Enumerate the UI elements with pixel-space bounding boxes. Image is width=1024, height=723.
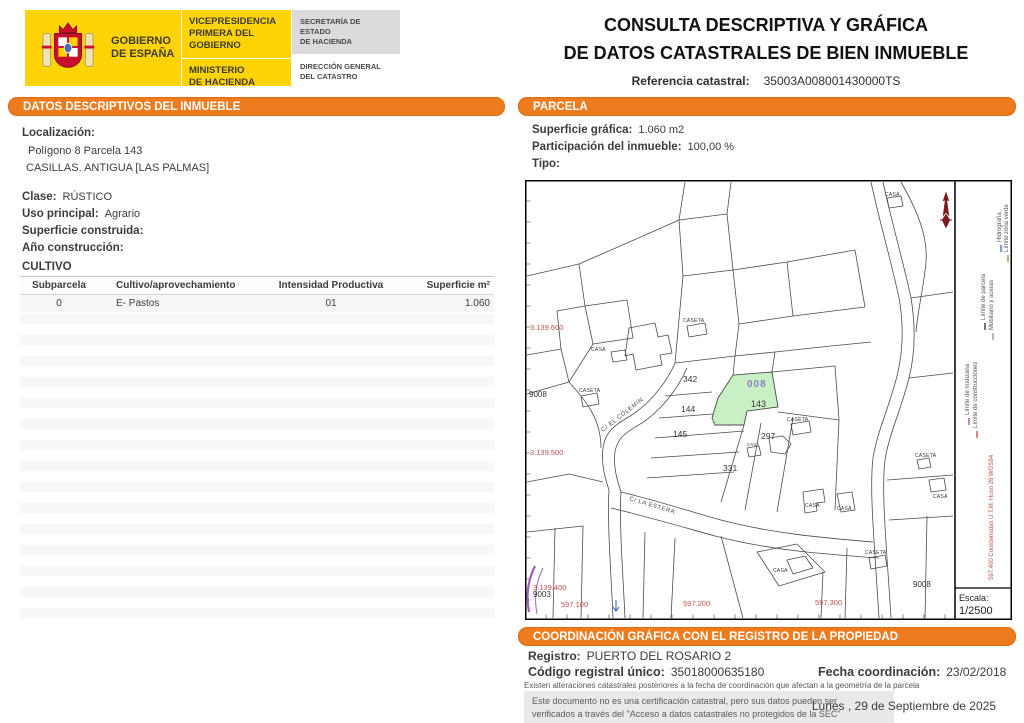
tipo-label: Tipo:: [532, 158, 560, 170]
coord-y-3139500: 3.139.500: [530, 448, 563, 457]
vicepresidencia-label: VICEPRESIDENCIA PRIMERA DEL GOBIERNO: [182, 10, 291, 59]
direccion-general-catastro-label: DIRECCIÓN GENERAL DEL CATASTRO: [300, 62, 408, 82]
cultivo-table: Subparcela Cultivo/aprovechamiento Inten…: [20, 276, 494, 620]
referencia-label: Referencia catastral:: [632, 74, 750, 88]
localizacion-line2: CASILLAS. ANTIGUA [LAS PALMAS]: [26, 162, 209, 174]
superficie-grafica-field: Superficie gráfica:1.060 m2: [532, 124, 684, 136]
superficie-construida-field: Superficie construida:: [22, 225, 149, 237]
parcel-label-9008-left: 9008: [529, 390, 547, 399]
coat-of-arms-icon: [41, 18, 95, 78]
localizacion-label: Localización:: [22, 127, 95, 139]
superficie-grafica-value: 1.060 m2: [638, 124, 684, 136]
casa-label: CASA: [805, 503, 820, 509]
legend-label-zona-verde: Límite zona verde: [1004, 204, 1010, 252]
cadastral-document: GOBIERNO DE ESPAÑA VICEPRESIDENCIA PRIME…: [0, 0, 1024, 723]
cell-subparcela: 0: [20, 298, 98, 309]
parcel-label-331: 331: [723, 463, 737, 473]
parcel-label-342: 342: [683, 374, 697, 384]
caseta-label: CASETA: [915, 453, 937, 459]
coord-y-3139600: 3.139.600: [530, 323, 563, 332]
participacion-field: Participación del inmueble:100,00 %: [532, 141, 734, 153]
col-cultivo: Cultivo/aprovechamiento: [98, 280, 256, 291]
coord-y-3139400: 3.139.400: [533, 583, 566, 592]
title-line-1: CONSULTA DESCRIPTIVA Y GRÁFICA: [536, 12, 996, 40]
fecha-coordinacion-value: 23/02/2018: [946, 665, 1006, 679]
title-line-2: DE DATOS CATASTRALES DE BIEN INMUEBLE: [536, 40, 996, 68]
secretaria-estado-label: SECRETARÍA DE ESTADO DE HACIENDA: [292, 10, 400, 54]
caseta-label: CASETA: [787, 417, 809, 423]
codigo-registral-field: Código registral único:35018000635180: [528, 665, 764, 679]
utm-reference-label: 597.400 Coordenadas U.T.M. Huso 28 WGS84: [989, 454, 995, 580]
cadastral-map: 342 144 145 297 331 008 143 9008 9003 90…: [525, 180, 1012, 620]
coord-x-597300: 597.300: [815, 598, 842, 607]
cell-superficie: 1.060: [406, 298, 494, 309]
empty-table-rows: [20, 314, 494, 620]
section-bar-parcela: PARCELA: [518, 97, 1016, 116]
escala-label: Escala:: [959, 593, 989, 603]
cultivo-header-row: Subparcela Cultivo/aprovechamiento Inten…: [20, 276, 494, 295]
casa-label: CASA: [885, 192, 900, 198]
legend-label-manzana: Límite de manzana: [965, 363, 971, 415]
cadastral-map-svg: 342 144 145 297 331 008 143 9008 9003 90…: [525, 180, 1012, 620]
caseta-label: CASETA: [579, 388, 601, 394]
uso-value: Agrario: [105, 208, 140, 220]
clase-value: RÚSTICO: [63, 191, 113, 203]
registro-value: PUERTO DEL ROSARIO 2: [587, 649, 732, 663]
document-date: Lunes , 29 de Septiembre de 2025: [700, 699, 996, 713]
fecha-coordinacion-field: Fecha coordinación:23/02/2018: [818, 665, 1006, 679]
uso-label: Uso principal:: [22, 208, 99, 220]
coord-x-597200: 597.200: [683, 599, 710, 608]
superficie-grafica-label: Superficie gráfica:: [532, 124, 632, 136]
anio-construccion-label: Año construcción:: [22, 242, 124, 254]
clase-field: Clase:RÚSTICO: [22, 191, 112, 203]
document-title: CONSULTA DESCRIPTIVA Y GRÁFICA DE DATOS …: [536, 12, 996, 88]
casa-label: CASA: [747, 442, 759, 447]
alteraciones-note: Existen alteraciones catastrales posteri…: [524, 681, 919, 690]
legend-label-hidrografia: Hidrografía: [997, 212, 1003, 242]
casa-label: CASA: [837, 506, 852, 512]
cultivo-title: CULTIVO: [22, 261, 72, 273]
referencia-value: 35003A008001430000TS: [764, 74, 901, 88]
superficie-construida-label: Superficie construida:: [22, 225, 143, 237]
government-logo-band: GOBIERNO DE ESPAÑA VICEPRESIDENCIA PRIME…: [25, 10, 291, 86]
gobierno-espana-label: GOBIERNO DE ESPAÑA: [111, 35, 181, 61]
parcel-label-144: 144: [681, 404, 695, 414]
escala-value: 1/2500: [959, 605, 993, 617]
table-row: 0 E- Pastos 01 1.060: [20, 295, 494, 312]
tipo-field: Tipo:: [532, 158, 566, 170]
section-bar-coordinacion: COORDINACIÓN GRÁFICA CON EL REGISTRO DE …: [518, 627, 1016, 646]
caseta-label: CASETA: [683, 318, 705, 324]
casa-label: CASA: [591, 347, 606, 353]
referencia-catastral: Referencia catastral:35003A008001430000T…: [536, 74, 996, 88]
codigo-registral-label: Código registral único:: [528, 665, 665, 679]
parcel-label-297: 297: [761, 431, 775, 441]
col-subparcela: Subparcela: [20, 280, 98, 291]
uso-principal-field: Uso principal:Agrario: [22, 208, 140, 220]
casa-label: CASA: [773, 568, 788, 574]
localizacion-line1: Polígono 8 Parcela 143: [28, 145, 142, 157]
legend-label-construcciones: Límite de construcciones: [973, 362, 979, 428]
col-intensidad: Intensidad Productiva: [256, 280, 406, 291]
parcel-label-9008-right: 9008: [913, 580, 931, 589]
highlight-number-143: 143: [751, 399, 766, 409]
spain-coat-of-arms: [25, 10, 111, 86]
col-superficie: Superficie m²: [406, 280, 494, 291]
highlight-code-008: 008: [747, 379, 767, 390]
codigo-registral-value: 35018000635180: [671, 665, 764, 679]
cell-cultivo: E- Pastos: [98, 298, 256, 309]
legend-label-mobiliario: Mobiliario y aceras: [989, 280, 995, 330]
anio-construccion-field: Año construcción:: [22, 242, 130, 254]
ministry-labels: VICEPRESIDENCIA PRIMERA DEL GOBIERNO MIN…: [181, 10, 291, 86]
registro-field: Registro:PUERTO DEL ROSARIO 2: [528, 649, 731, 663]
ministerio-label: MINISTERIO DE HACIENDA: [182, 59, 291, 95]
clase-label: Clase:: [22, 191, 57, 203]
casa-label: CASA: [933, 494, 948, 500]
participacion-value: 100,00 %: [688, 141, 734, 153]
parcel-label-145: 145: [673, 429, 687, 439]
caseta-label: CASETA: [865, 550, 887, 556]
fecha-coordinacion-label: Fecha coordinación:: [818, 665, 940, 679]
cell-intensidad: 01: [256, 298, 406, 309]
coord-x-597100: 597.100: [561, 600, 588, 609]
legend-label-parcela: Límite de parcela: [981, 273, 987, 320]
registro-label: Registro:: [528, 649, 581, 663]
participacion-label: Participación del inmueble:: [532, 141, 682, 153]
section-bar-datos-descriptivos: DATOS DESCRIPTIVOS DEL INMUEBLE: [8, 97, 505, 116]
